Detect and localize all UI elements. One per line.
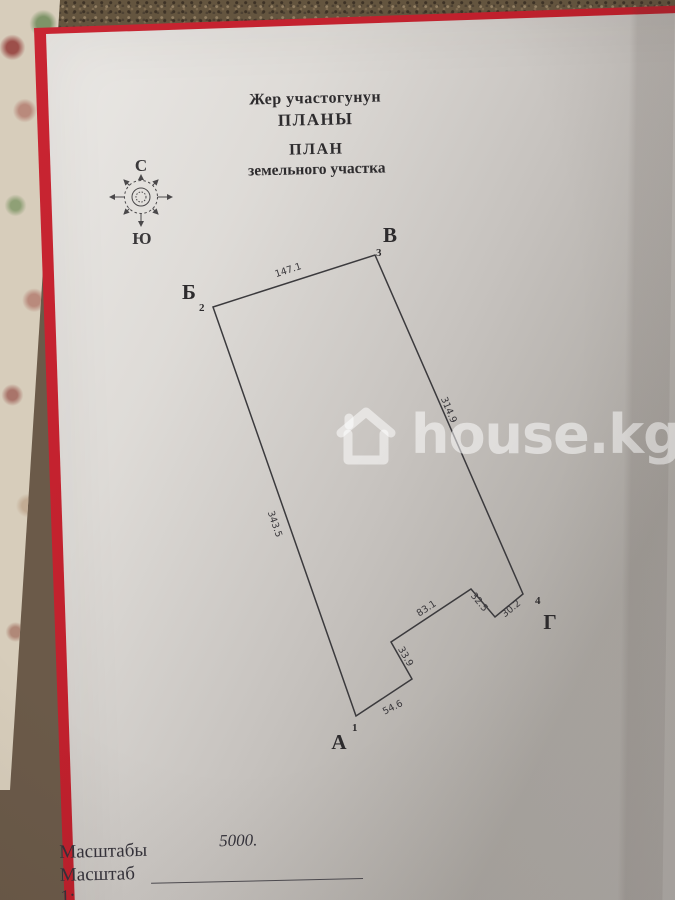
corner-number-4: 4 <box>535 595 541 607</box>
corner-number-3: 3 <box>376 247 382 259</box>
corner-label-g: Г <box>543 610 556 634</box>
corner-label-b: Б <box>182 280 196 304</box>
corner-label-v: В <box>383 223 397 247</box>
measurement-a-b: 343.5 <box>265 510 284 539</box>
photo-scene: Жер участогунун ПЛАНЫ ПЛАН земельного уч… <box>0 0 675 900</box>
measurement-p6-p7: 83.1 <box>415 599 439 620</box>
corner-number-2: 2 <box>199 302 205 314</box>
plot-outline-drawing: А 1 Б 2 В 3 Г 4 147.1 343.5 314.9 30.2 3… <box>0 0 675 900</box>
measurement-b-v: 147.1 <box>274 261 303 280</box>
measurement-p5-p6: 32.5 <box>468 591 490 614</box>
measurement-p8-a: 54.6 <box>381 698 405 717</box>
measurement-v-g: 314.9 <box>438 395 459 424</box>
corner-label-a: А <box>331 730 347 754</box>
corner-number-1: 1 <box>352 722 358 734</box>
measurement-p7-p8: 33.9 <box>395 645 415 669</box>
measurement-g-p5: 30.2 <box>500 598 523 620</box>
document-content: Жер участогунун ПЛАНЫ ПЛАН земельного уч… <box>0 0 675 900</box>
scale-value-handwritten: 5000. <box>219 830 258 851</box>
scale-label-singular: Масштаб 1: <box>60 863 136 900</box>
plot-boundary <box>213 255 523 716</box>
scale-label-plural: Масштабы <box>59 840 147 864</box>
